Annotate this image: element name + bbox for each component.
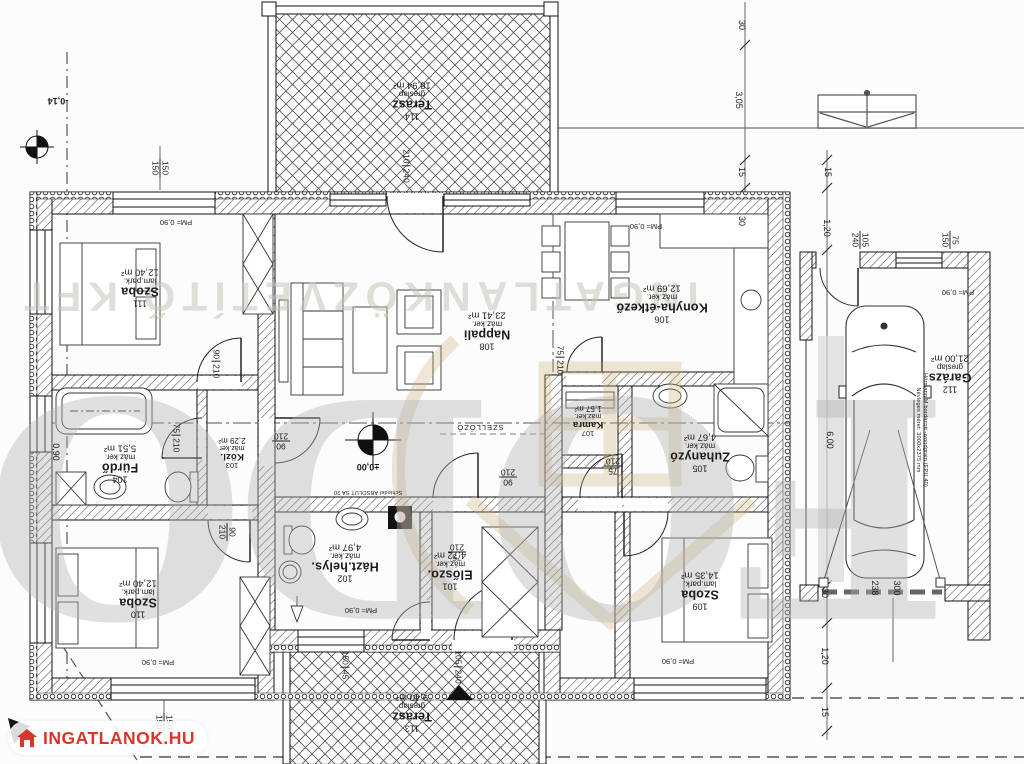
door-size-terasz: 210240: [402, 149, 411, 182]
dim-30-b: 30: [736, 216, 746, 226]
dim-600: 6,00: [824, 431, 834, 449]
door-size-szoba110: 90210: [218, 523, 237, 541]
level-inside: ±0,00: [357, 461, 379, 471]
door-size-szoba111: 90210: [212, 350, 221, 379]
dim-300: 300: [891, 580, 901, 595]
chimney-note: Schiedel ABSOLUT SA 20: [334, 488, 403, 494]
door-size-furdo: 75210: [172, 424, 181, 453]
pm-konyha: PM= 0,90: [630, 222, 662, 230]
room-label-terasz-113: 113Terasz greslap9,40 m²: [392, 691, 432, 732]
agency-watermark: INGATLANKÖZVETÍTŐ KFT: [17, 274, 698, 317]
room-label-hazt-102: 102Házt.helys. máz.ker.4,97 m²: [311, 541, 379, 582]
dim-120-a: 1,20: [821, 219, 831, 237]
room-label-garazs-112: 112Garázs greslap21,00 m²: [929, 352, 972, 393]
level-symbol-outside: [20, 130, 54, 164]
window-size-hazt: 15045: [341, 651, 350, 680]
dim-15-a: 15: [736, 167, 746, 177]
room-label-zuhanyzo-105: 105Zuhanyzó máz.ker.4,67 m²: [670, 431, 730, 472]
house-icon: [16, 728, 38, 748]
pm-hazt: PM= 0,90: [345, 606, 377, 614]
room-label-konyha-106: 106Konyha-étkező máz.ker.12,69 m²: [616, 282, 708, 323]
room-label-furdo-104: 104Fürdő máz.ker.5,51 m²: [102, 442, 138, 483]
level-outside: -0,14: [48, 95, 69, 105]
floorplan-canvas: INGATLANKÖZVETÍTŐ KFT FODOR 114Terasz gr…: [0, 0, 1024, 764]
door-size-entrance: 105240: [454, 650, 463, 683]
dim-090-left: 0,90: [50, 443, 60, 461]
room-label-kozl-103: 103Közl. máz.ker2,29 m²: [218, 435, 245, 469]
room-label-kamra-107: 107Kamra máz.ker.1,57 m²: [573, 403, 604, 437]
dim-15-b: 15: [822, 167, 832, 177]
vent-label: SZELLŐZŐ: [456, 423, 503, 431]
pm-szoba110: PM= 0,90: [142, 658, 174, 666]
dim-30-top: 30: [736, 20, 746, 30]
window-size-top-left: 150150: [151, 159, 170, 177]
dim-305: 3,05: [733, 91, 743, 109]
pm-szoba109: PM= 0,90: [662, 657, 694, 665]
door-size-zuhanyzo: 75210: [604, 457, 622, 476]
dim-30-c: 30: [819, 588, 829, 598]
garage-door-note: Hörmann M bordázott -woodgrain (EPU 40) …: [914, 373, 928, 487]
pm-szoba111: PM= 0,90: [160, 218, 192, 226]
pm-garazs: PM= 0,90: [942, 288, 974, 296]
room-label-nappali-108: 108Nappali máz.ker.23,41 m²: [464, 309, 511, 350]
room-label-szoba-111: 111Szoba lam.park.12,40 m²: [121, 266, 159, 307]
ingatlanok-logo: INGATLANOK.HU: [8, 721, 207, 755]
dim-238: 238: [869, 580, 879, 595]
room-label-terasz-114: 114Terasz greslap18,94 m²: [392, 79, 432, 120]
room-label-szoba-110: 110Szoba lam.park.12,40 m²: [119, 577, 157, 618]
door-size-kamra: 75210: [556, 346, 565, 375]
dim-120-b: 1,20: [819, 647, 829, 665]
window-size-garage: 75150: [941, 231, 960, 249]
logo-text: INGATLANOK.HU: [43, 728, 195, 749]
door-size-garage-entry: 105240: [851, 231, 870, 249]
door-size-nappali-kozl: 90210: [272, 432, 290, 451]
door-size-nappali-eloszo: 90210: [499, 468, 517, 487]
room-label-szoba-109: 109Szoba lam.park.14,35 m²: [681, 569, 719, 610]
door-size-eloszo-hazt: 75210: [448, 543, 466, 562]
dim-15-c: 15: [819, 707, 829, 717]
gate-symbol: [818, 91, 916, 129]
